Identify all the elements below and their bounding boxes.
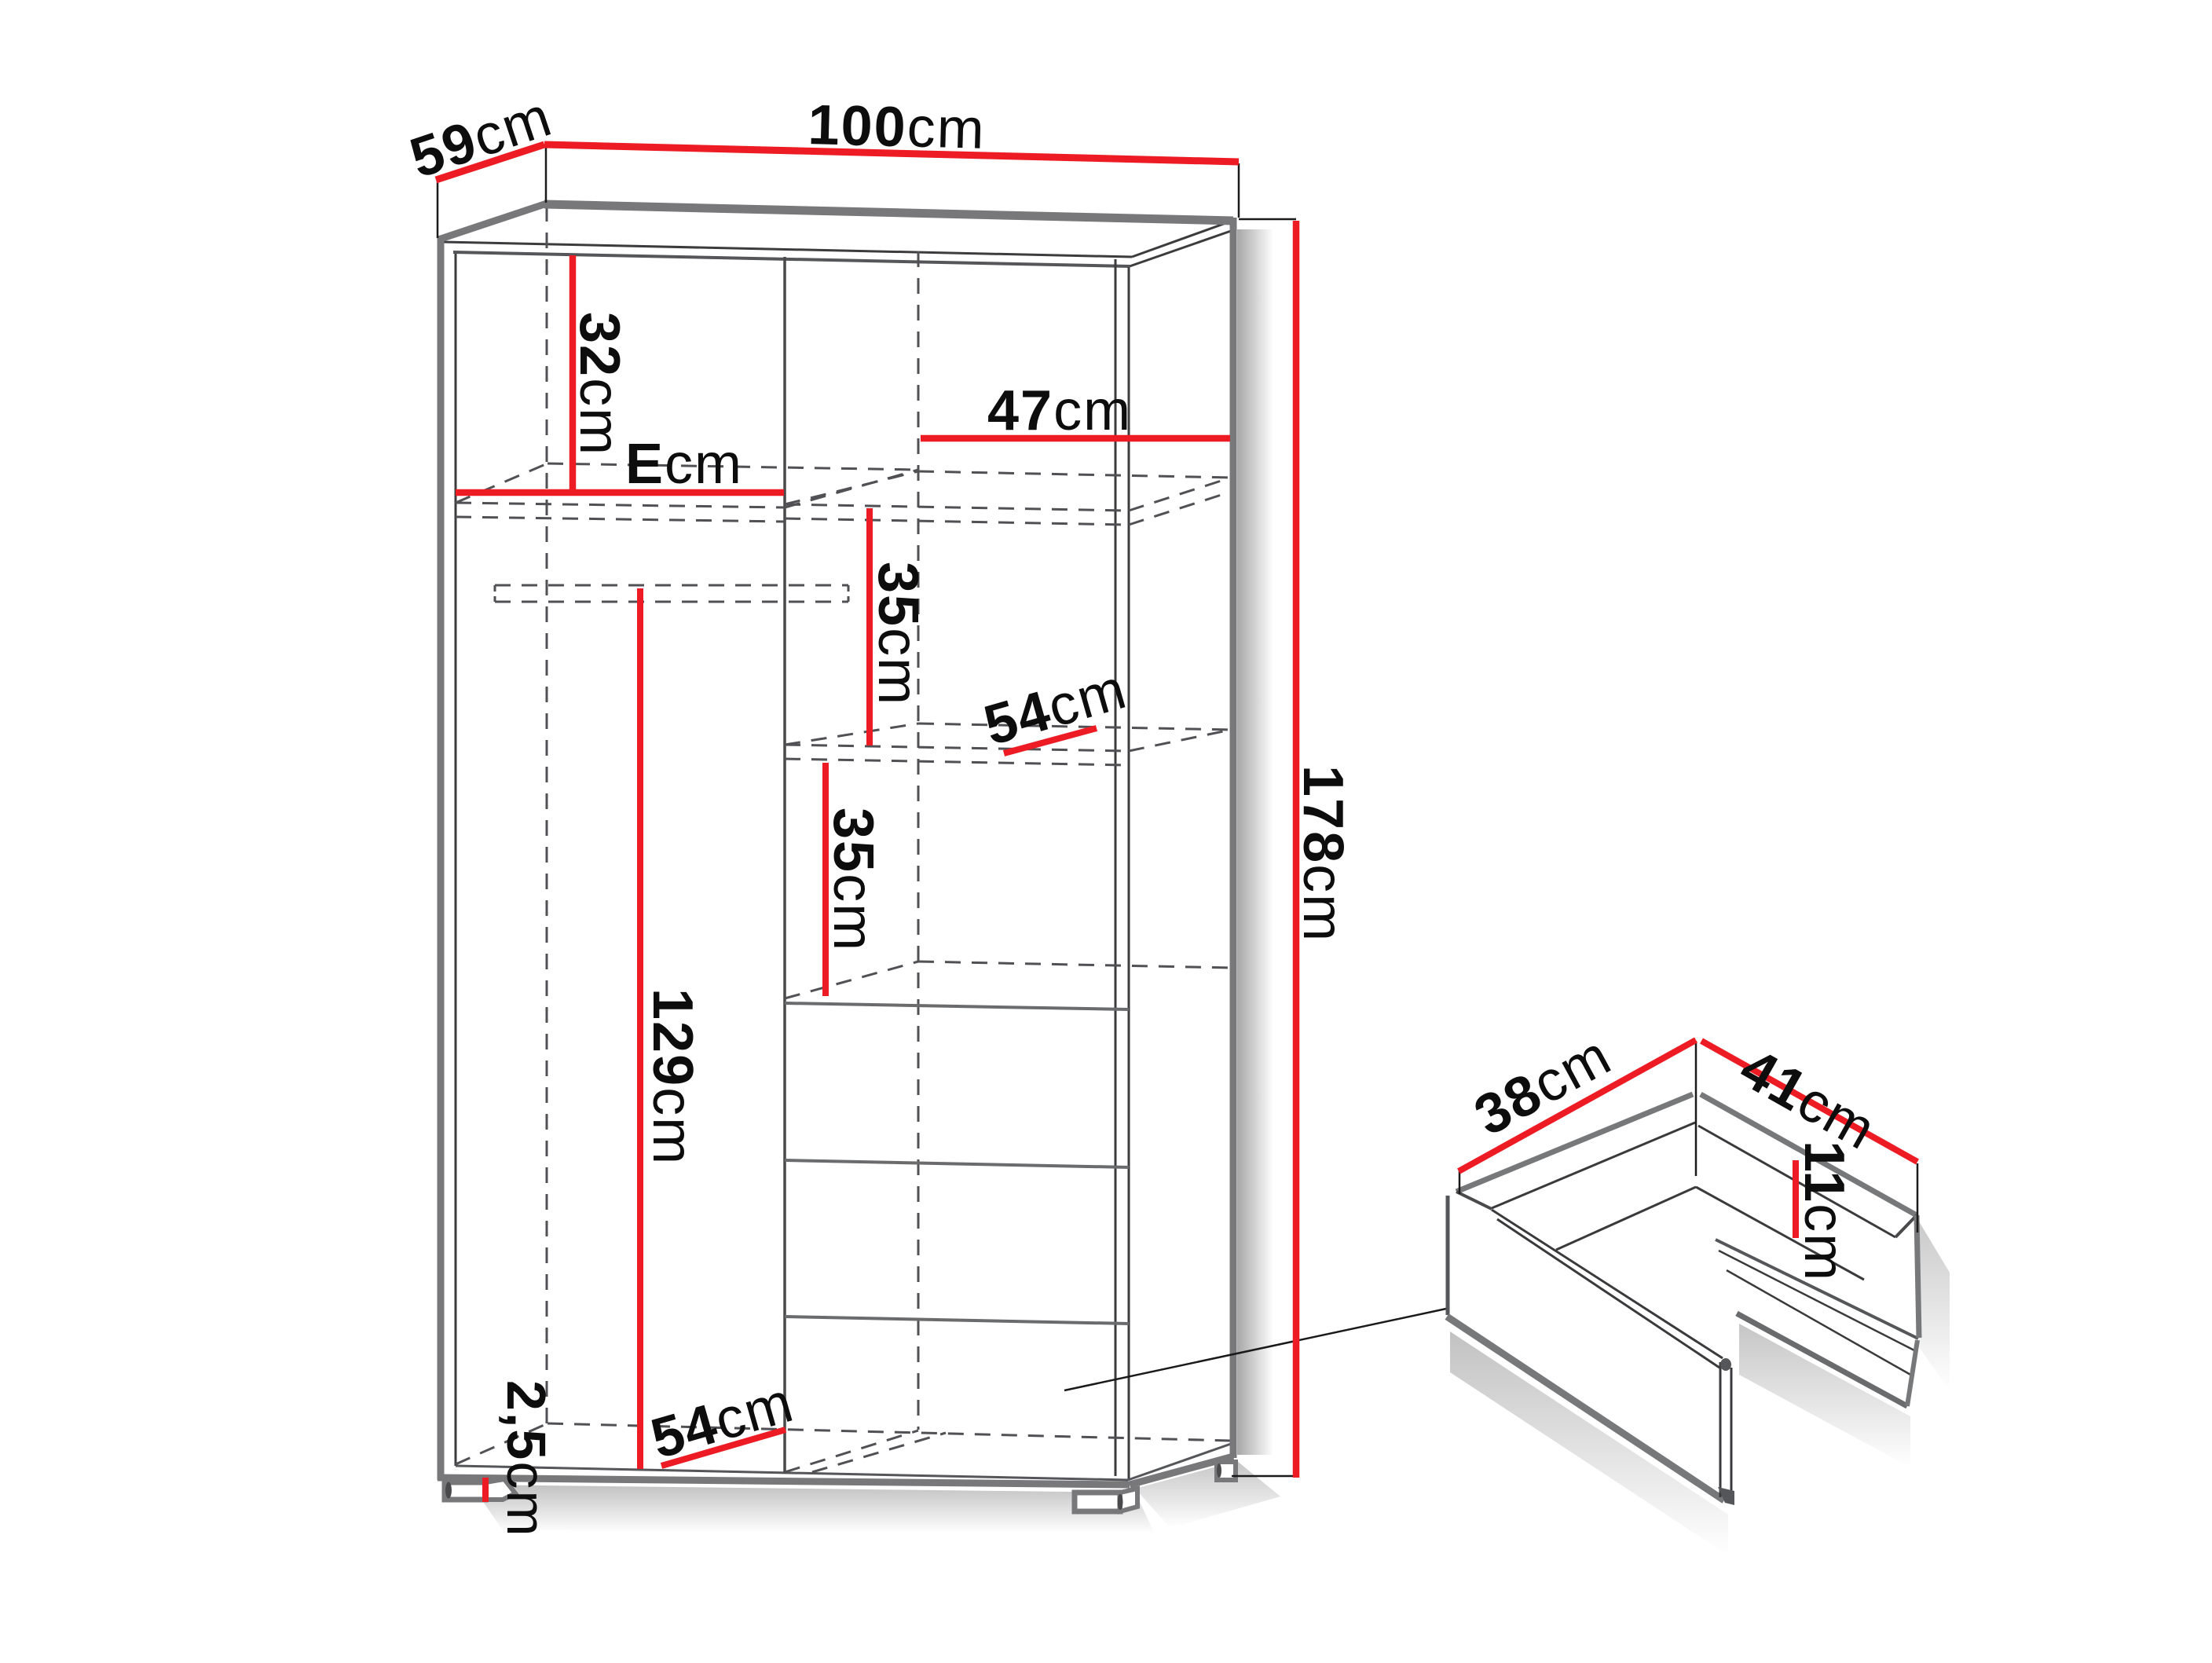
svg-text:11cm: 11cm (1793, 1141, 1855, 1282)
svg-text:100cm: 100cm (808, 93, 987, 161)
svg-text:32cm: 32cm (568, 312, 631, 456)
svg-text:35cm: 35cm (822, 808, 884, 952)
svg-text:2,5cm: 2,5cm (496, 1380, 557, 1538)
svg-text:Ecm: Ecm (625, 433, 743, 496)
svg-text:35cm: 35cm (866, 562, 929, 706)
svg-text:178cm: 178cm (1291, 765, 1354, 943)
svg-text:129cm: 129cm (641, 988, 704, 1166)
svg-text:47cm: 47cm (987, 379, 1132, 442)
